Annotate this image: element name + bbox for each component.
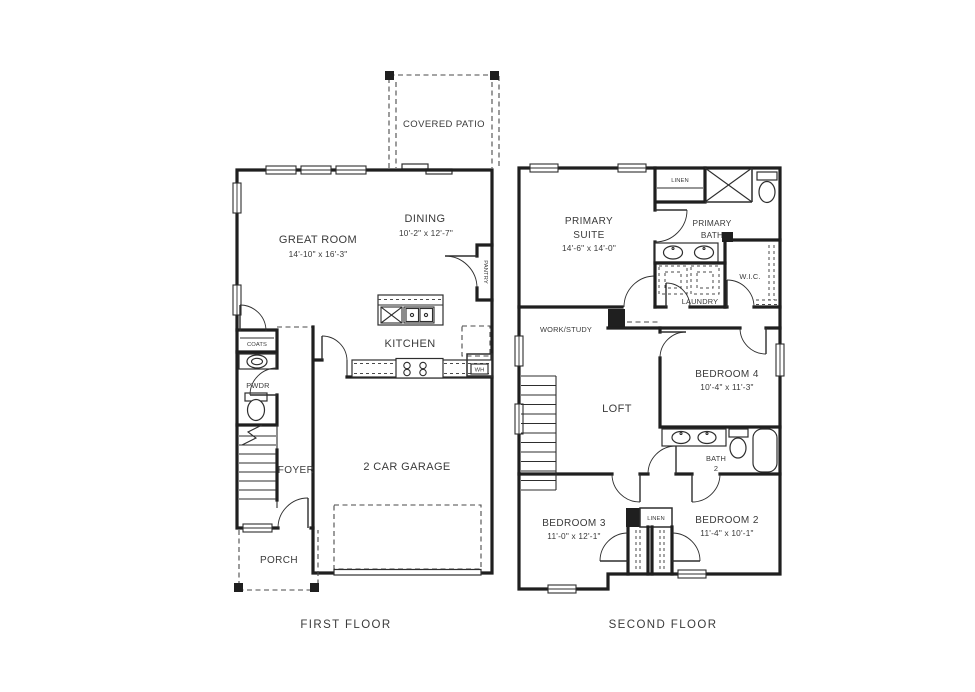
toilet-icon [729, 429, 748, 458]
bedroom-4: BEDROOM 4 10'-4" x 11'-3" [660, 328, 780, 427]
bath2-label-2: 2 [714, 464, 718, 473]
bedroom2-closet-door [672, 533, 700, 561]
coats-closet [240, 305, 274, 338]
toilet-icon [757, 172, 777, 203]
first-floor-title: FIRST FLOOR [300, 619, 391, 631]
garage-entry-door [322, 336, 347, 377]
primary-suite-label-2: SUITE [573, 230, 604, 241]
sink-icon [247, 355, 267, 368]
bedroom2-label: BEDROOM 2 [695, 515, 759, 526]
porch-post [234, 583, 243, 592]
stove-icon [396, 359, 443, 379]
foyer-label: FOYER [278, 465, 314, 476]
loft-label: LOFT [602, 403, 632, 415]
water-heater: WH [467, 354, 492, 376]
window [618, 164, 646, 172]
linen-upper-label: LINEN [671, 178, 689, 184]
floor-plan-page: WH PANTRY COVERED PATIO GREAT ROOM 14'-1… [0, 0, 975, 692]
bath-2: BATH 2 [662, 429, 777, 473]
kitchen-label: KITCHEN [384, 338, 435, 350]
water-heater-label: WH [475, 368, 485, 374]
great-room-dims: 14'-10" x 16'-3" [289, 249, 348, 259]
dining-dims: 10'-2" x 12'-7" [399, 228, 453, 238]
bathtub-icon [753, 429, 777, 472]
bedroom2-door [692, 474, 720, 502]
bedroom4-dims: 10'-4" x 11'-3" [700, 382, 753, 392]
garage-door [334, 505, 481, 575]
closet-rods [636, 530, 664, 572]
coats-label: COATS [247, 342, 267, 348]
stair-break-symbol [242, 425, 262, 445]
kitchen-area: WH [347, 295, 492, 378]
sink-icon [672, 432, 690, 444]
primary-suite-label-1: PRIMARY [565, 216, 613, 227]
window [243, 524, 272, 532]
window [266, 166, 296, 174]
sliding-door-panel [402, 164, 428, 169]
primary-bath: LINEN PRIMARY BATH [655, 168, 780, 307]
front-door [278, 498, 308, 528]
primary-suite [519, 276, 655, 307]
linen-lower-label: LINEN [647, 516, 665, 522]
pwdr-label: PWDR [246, 381, 269, 390]
floor-plan-drawing: WH PANTRY COVERED PATIO GREAT ROOM 14'-1… [0, 0, 975, 692]
door-swing [240, 305, 266, 331]
pantry-label: PANTRY [482, 260, 488, 284]
double-vanity [655, 243, 718, 262]
hallway [608, 309, 660, 328]
first-floor-plan: WH PANTRY COVERED PATIO GREAT ROOM 14'-1… [233, 71, 499, 631]
window [515, 336, 523, 366]
garage-label: 2 CAR GARAGE [363, 461, 450, 473]
patio-post [385, 71, 394, 80]
window [301, 166, 331, 174]
covered-patio-label: COVERED PATIO [403, 119, 485, 130]
window [336, 166, 366, 174]
stairs-first-floor [239, 425, 276, 499]
loft-cased-opening [627, 322, 658, 327]
linen-closet-upper: LINEN [657, 178, 703, 188]
linen-and-closets: LINEN [600, 508, 700, 574]
bedroom3-dims: 11'-0" x 12'-1" [547, 531, 600, 541]
window [548, 585, 576, 593]
toilet-icon [248, 400, 265, 421]
window [678, 570, 706, 578]
primary-bath-label-2: BATH [701, 230, 723, 240]
walk-in-closet: W.I.C. [722, 232, 780, 307]
primary-bath-label-1: PRIMARY [692, 218, 731, 228]
great-room-label: GREAT ROOM [279, 234, 357, 246]
dining-label: DINING [405, 213, 446, 225]
shower-icon [705, 168, 752, 202]
laundry-label: LAUNDRY [682, 297, 719, 306]
refrigerator-space [462, 326, 490, 356]
patio-post [490, 71, 499, 80]
dryer-icon [691, 266, 719, 294]
kitchen-island [378, 295, 443, 325]
bedroom4-label: BEDROOM 4 [695, 369, 759, 380]
work-study-label: WORK/STUDY [540, 325, 592, 334]
second-floor-plan: LINEN PRIMARY BATH [515, 164, 784, 631]
bedroom3-label: BEDROOM 3 [542, 518, 606, 529]
porch-post [310, 583, 319, 592]
sink-icon [698, 432, 716, 444]
second-floor-title: SECOND FLOOR [609, 619, 718, 631]
primary-suite-dims: 14'-6" x 14'-0" [562, 243, 616, 253]
porch-label: PORCH [260, 555, 298, 566]
bath2-label-1: BATH [706, 454, 726, 463]
bath2-door [648, 446, 676, 474]
bedroom3-closet-door [600, 533, 628, 561]
bedroom2-dims: 11'-4" x 10'-1" [700, 528, 753, 538]
first-floor-windows [233, 166, 366, 532]
pantry: PANTRY [445, 245, 492, 300]
window [515, 404, 523, 434]
bath-door-swing [655, 210, 687, 242]
window [530, 164, 558, 172]
window [776, 344, 784, 376]
window [233, 183, 241, 213]
laundry: LAUNDRY [655, 263, 725, 307]
wic-label: W.I.C. [739, 272, 760, 281]
double-vanity [662, 429, 726, 446]
bedroom3-door [612, 474, 640, 502]
